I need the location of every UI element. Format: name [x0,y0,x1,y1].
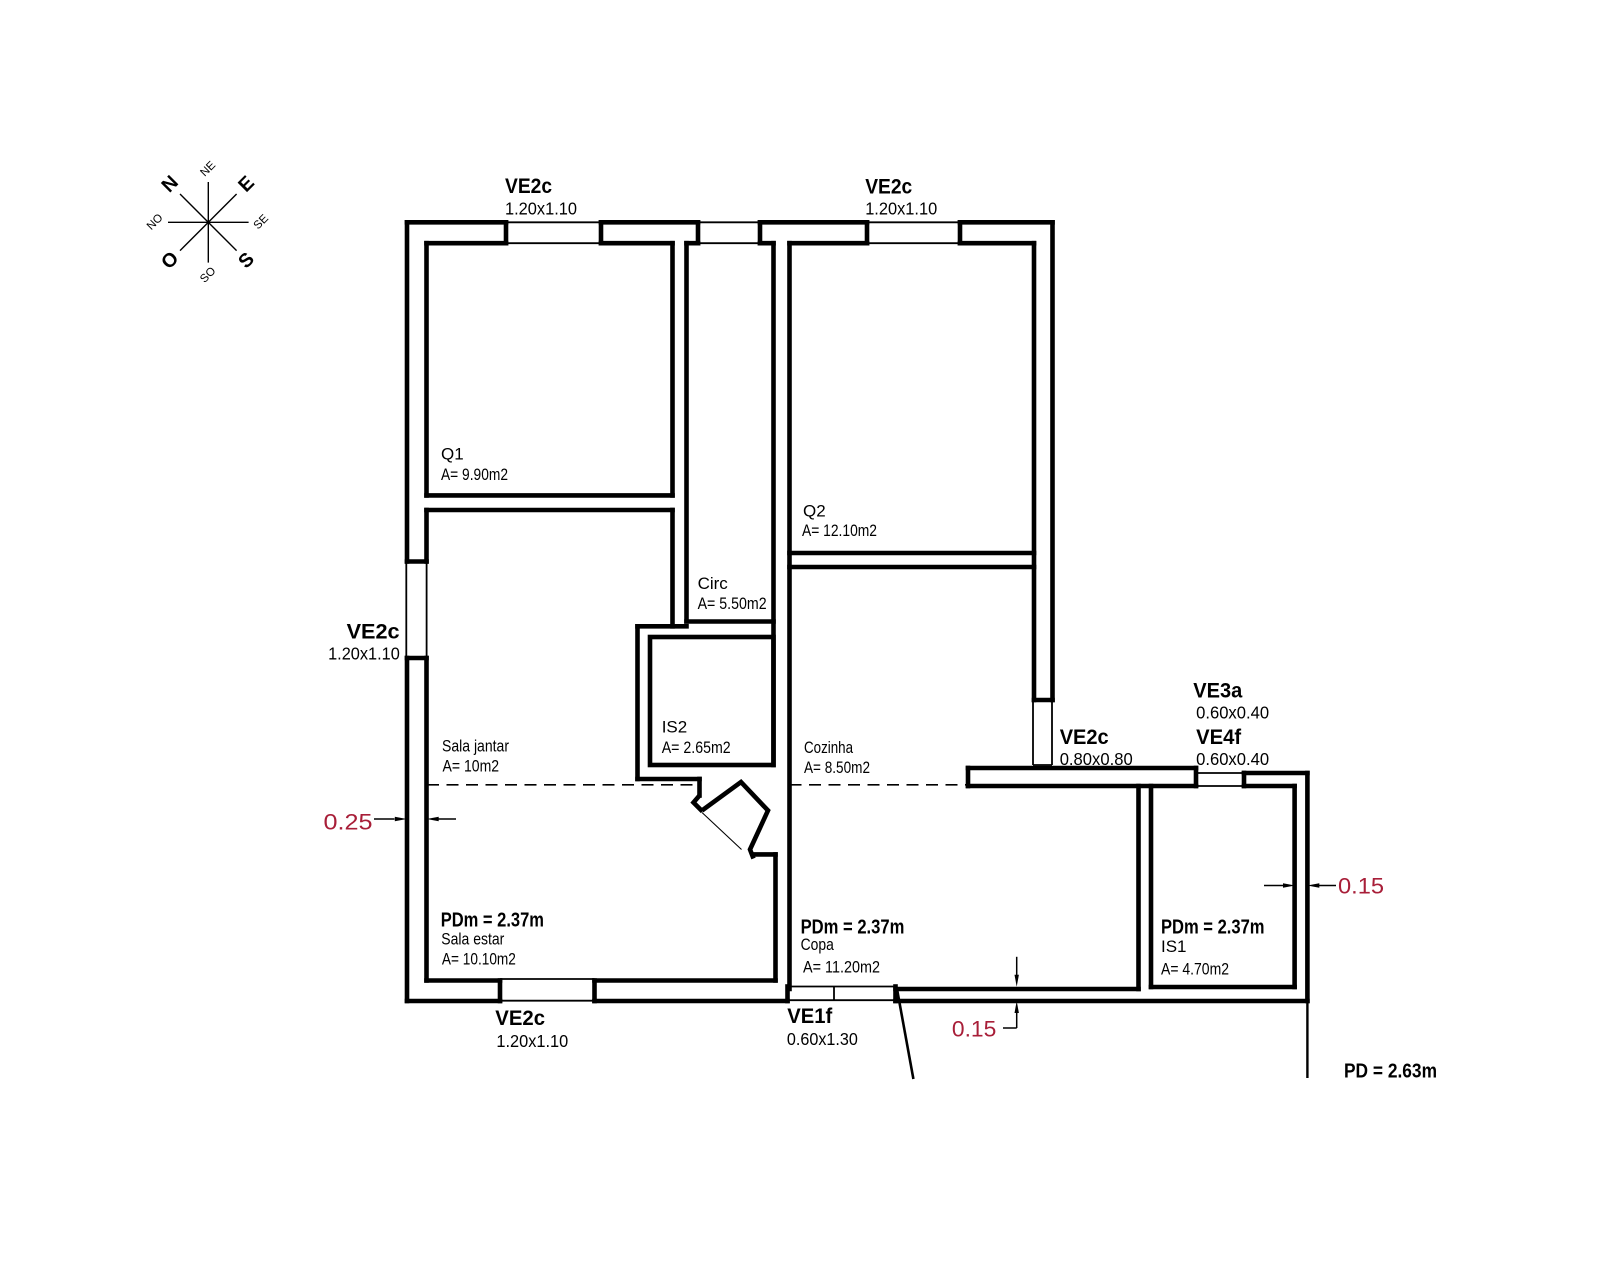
svg-text:VE2c: VE2c [495,1007,545,1030]
svg-text:PDm = 2.37m: PDm = 2.37m [1161,917,1265,939]
svg-text:Copa: Copa [801,935,835,954]
svg-text:A= 5.50m2: A= 5.50m2 [698,594,767,613]
svg-text:A= 12.10m2: A= 12.10m2 [802,521,877,540]
svg-text:A= 4.70m2: A= 4.70m2 [1161,960,1229,979]
svg-text:VE2c: VE2c [347,620,400,643]
svg-text:0.80x0.80: 0.80x0.80 [1060,749,1133,769]
svg-text:IS2: IS2 [662,718,688,737]
svg-text:VE2c: VE2c [1060,726,1109,749]
svg-text:0.60x0.40: 0.60x0.40 [1196,749,1269,769]
svg-text:A= 10m2: A= 10m2 [443,757,500,776]
svg-text:Q2: Q2 [803,502,826,521]
svg-text:IS1: IS1 [1161,937,1187,956]
svg-text:A= 2.65m2: A= 2.65m2 [662,738,731,757]
svg-text:Q1: Q1 [441,445,464,464]
svg-text:VE4f: VE4f [1196,726,1242,749]
svg-text:A= 8.50m2: A= 8.50m2 [804,758,870,777]
svg-text:A= 9.90m2: A= 9.90m2 [441,465,508,484]
svg-text:0.60x1.30: 0.60x1.30 [787,1029,858,1049]
svg-text:VE2c: VE2c [865,175,912,198]
svg-text:Circ: Circ [698,574,729,593]
svg-text:VE2c: VE2c [505,175,552,198]
svg-text:Sala jantar: Sala jantar [442,737,509,756]
svg-text:A= 11.20m2: A= 11.20m2 [803,958,880,977]
svg-text:Cozinha: Cozinha [804,738,853,757]
svg-text:0.15: 0.15 [952,1016,996,1041]
svg-text:1.20x1.10: 1.20x1.10 [505,198,577,218]
svg-text:0.25: 0.25 [324,810,373,835]
svg-text:0.15: 0.15 [1338,874,1384,899]
svg-text:1.20x1.10: 1.20x1.10 [328,644,400,664]
svg-text:1.20x1.10: 1.20x1.10 [496,1031,568,1051]
svg-text:0.60x0.40: 0.60x0.40 [1196,703,1269,723]
svg-text:PDm = 2.37m: PDm = 2.37m [441,910,544,932]
svg-text:Sala estar: Sala estar [441,930,504,949]
svg-text:PD = 2.63m: PD = 2.63m [1344,1061,1437,1083]
svg-text:1.20x1.10: 1.20x1.10 [865,198,937,218]
svg-text:VE1f: VE1f [787,1005,833,1028]
svg-text:A= 10.10m2: A= 10.10m2 [442,950,516,969]
svg-text:VE3a: VE3a [1193,680,1242,703]
